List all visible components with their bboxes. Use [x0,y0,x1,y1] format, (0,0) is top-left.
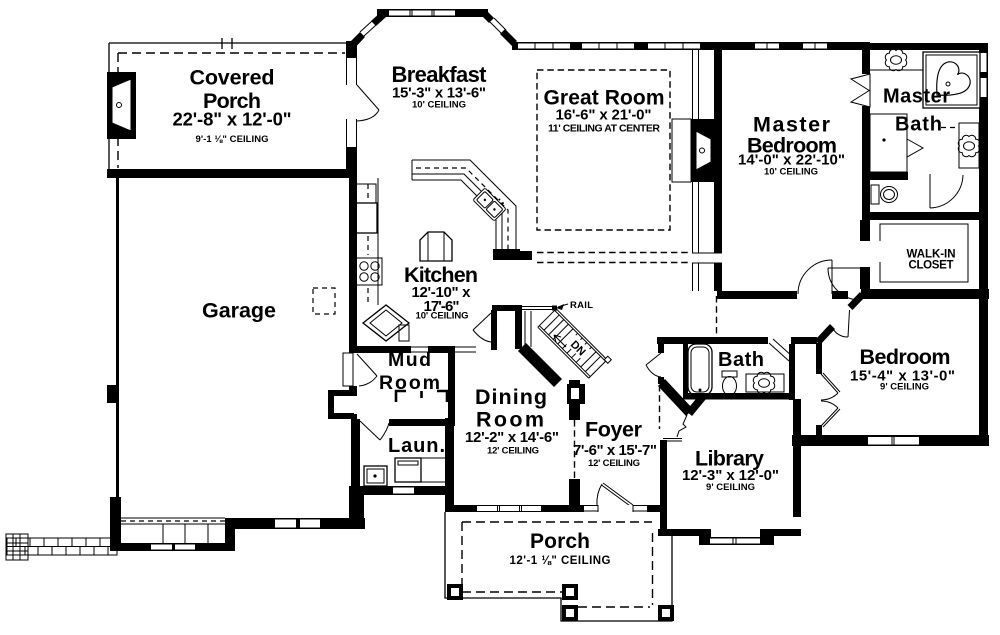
svg-text:Master: Master [883,86,950,108]
svg-text:10' CEILING: 10' CEILING [412,100,466,111]
svg-text:7'-6" x 15'-7": 7'-6" x 15'-7" [573,442,657,459]
svg-text:Bath: Bath [895,114,942,136]
svg-text:12'-2" x 14'-6": 12'-2" x 14'-6" [465,429,559,446]
svg-text:10' CEILING: 10' CEILING [764,167,818,178]
svg-text:Room: Room [379,372,440,394]
svg-text:Garage: Garage [202,299,276,323]
svg-text:Dining: Dining [475,385,547,409]
svg-text:16'-6" x 21'-0": 16'-6" x 21'-0" [556,107,652,124]
svg-text:Foyer: Foyer [585,418,643,442]
svg-text:Laun.: Laun. [388,435,445,457]
svg-text:9'-1 ⅛" CEILING: 9'-1 ⅛" CEILING [196,134,269,145]
svg-text:Mud: Mud [388,349,431,371]
svg-text:CLOSET: CLOSET [909,260,954,272]
svg-text:Bedroom: Bedroom [860,345,951,369]
svg-text:12' CEILING: 12' CEILING [487,446,539,457]
svg-text:9' CEILING: 9' CEILING [706,482,755,493]
svg-text:12'-1 ⅛" CEILING: 12'-1 ⅛" CEILING [510,555,611,567]
svg-text:Porch: Porch [530,530,590,553]
svg-text:Covered: Covered [190,66,275,90]
svg-text:RAIL: RAIL [570,300,593,311]
svg-text:22'-8" x 12'-0": 22'-8" x 12'-0" [173,109,292,130]
svg-text:12' CEILING: 12' CEILING [588,458,640,469]
svg-text:Breakfast: Breakfast [392,62,488,87]
svg-text:9' CEILING: 9' CEILING [880,382,929,393]
svg-text:11' CEILING AT CENTER: 11' CEILING AT CENTER [548,123,660,135]
svg-text:10' CEILING: 10' CEILING [416,311,469,322]
svg-text:Bath: Bath [718,349,764,371]
svg-text:Room: Room [476,408,544,432]
